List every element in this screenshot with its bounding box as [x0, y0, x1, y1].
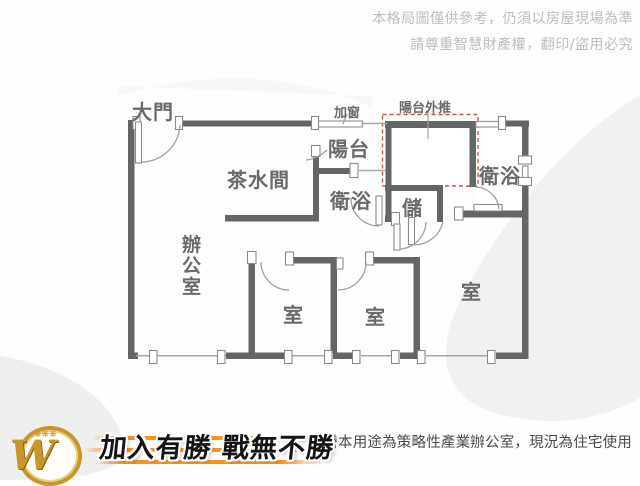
top-right-window: [476, 122, 501, 128]
usage-note: ★謄本用途為策略性產業辦公室，現況為住宅使用: [310, 431, 632, 452]
main-door-leaf: [136, 122, 142, 163]
brand-logo: ❋❋❋ W 加入有勝 戰無不勝: [12, 418, 342, 480]
disclaimer: 本格局圖僅供參考，仍須以房屋現場為準 請尊重智慧財產權，翻印/盜用必究: [372, 6, 633, 58]
label-balcony: 陽台: [328, 133, 370, 162]
label-storage: 儲: [402, 192, 423, 221]
label-pantry: 茶水間: [227, 164, 290, 193]
label-bath-right: 衛浴: [479, 160, 521, 189]
label-bath-mid: 衛浴: [330, 185, 372, 214]
hall-door-leaf: [394, 224, 400, 250]
label-added-window: 加窗: [334, 102, 360, 121]
logo-w-mark: W: [10, 432, 55, 479]
label-main-door: 大門: [132, 96, 174, 125]
added-window: [319, 121, 363, 127]
storage-door-leaf: [409, 218, 415, 245]
label-room-mid: 室: [365, 301, 386, 330]
right-wall-window: [523, 166, 529, 178]
logo-slogan: 加入有勝 戰無不勝: [98, 426, 337, 465]
bath-mid-door-leaf: [376, 196, 382, 225]
floorplan-page: 本格局圖僅供參考，仍須以房屋現場為準 請尊重智慧財產權，翻印/盜用必究 大門 加…: [0, 0, 640, 480]
main-door-arc: [142, 125, 180, 162]
floorplan-drawing: [0, 0, 640, 480]
label-room-right: 室: [461, 276, 482, 305]
label-room-left: 室: [283, 299, 304, 328]
label-balcony-pushout: 陽台外推: [399, 97, 451, 116]
disclaimer-line1: 本格局圖僅供參考，仍須以房屋現場為準: [372, 6, 633, 32]
room-left-door-arc: [261, 262, 289, 290]
storage-door-arc: [414, 222, 443, 245]
disclaimer-line2: 請尊重智慧財產權，翻印/盜用必究: [372, 32, 633, 58]
label-office: 辦公室: [182, 235, 203, 298]
